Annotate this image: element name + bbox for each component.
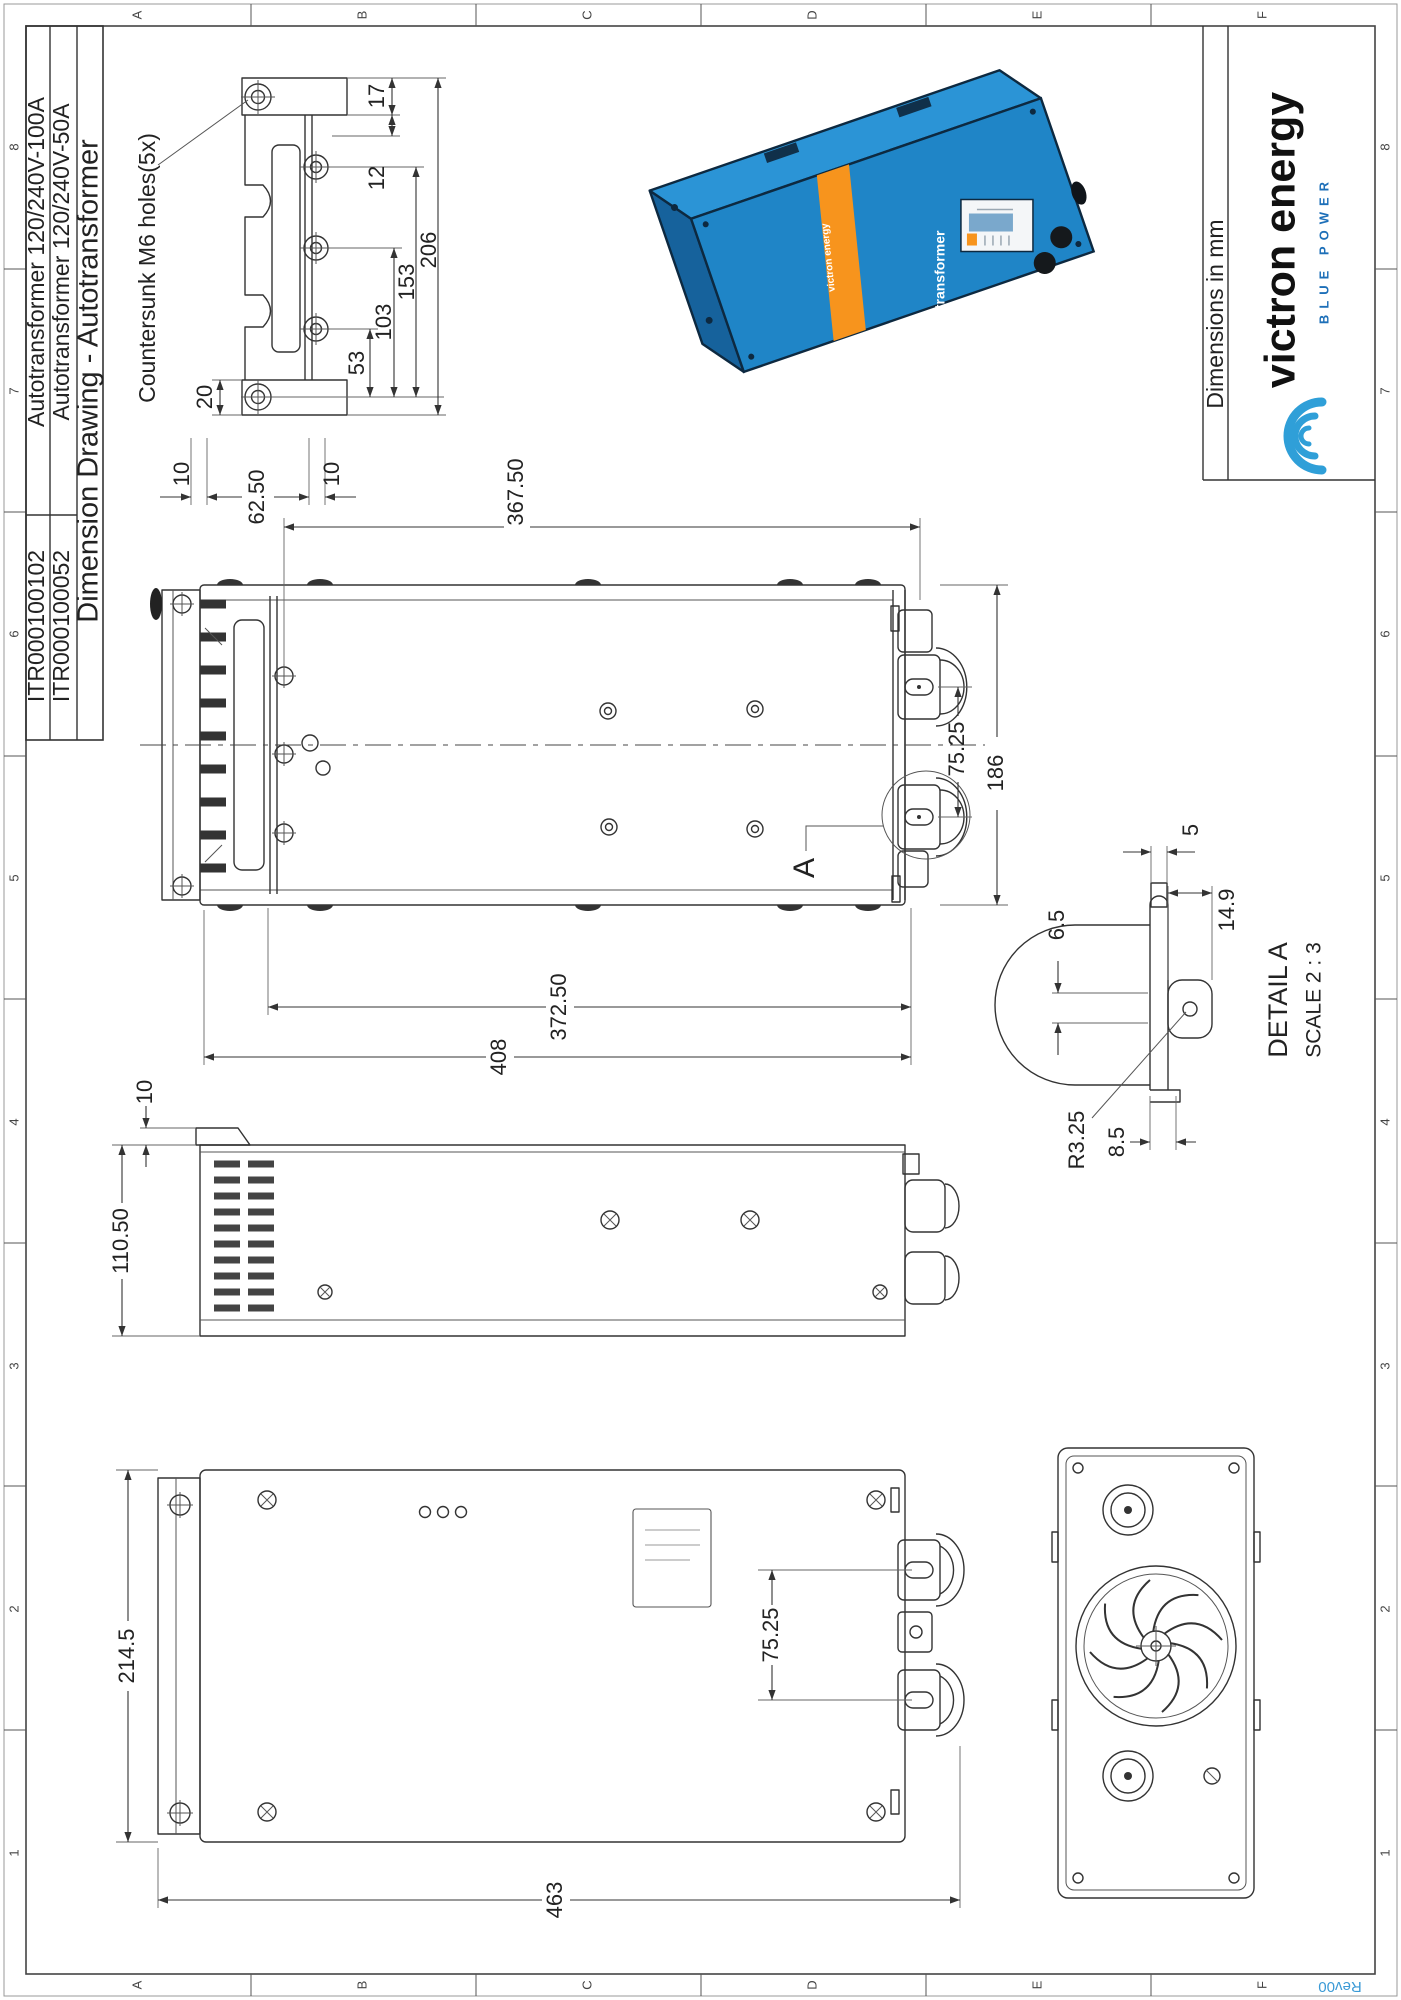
drawing-sheet-page: A B C D E F A B C D E F 8 7 6 5 4 3 2 1 … bbox=[0, 0, 1401, 2000]
title-block: Dimension Drawing - Autotransformer Auto… bbox=[23, 26, 105, 740]
row-description: Autotransformer 120/240V-50A bbox=[48, 103, 74, 421]
zone-number: 6 bbox=[1377, 630, 1392, 637]
dim-186: 186 bbox=[983, 755, 1008, 792]
zone-letter: A bbox=[129, 10, 144, 19]
zone-number: 7 bbox=[1377, 387, 1392, 394]
brand-block: Dimensions in mm victron energy BLUE POW… bbox=[1202, 26, 1375, 480]
dimension-drawing-svg: A B C D E F A B C D E F 8 7 6 5 4 3 2 1 … bbox=[0, 0, 1401, 2000]
brand-wordmark: victron energy bbox=[1256, 92, 1304, 388]
zone-letter: D bbox=[804, 1980, 819, 1989]
zone-number: 3 bbox=[6, 1362, 21, 1369]
bracket-view: Countersunk M6 holes(5x) 17 12 53 103 15… bbox=[134, 78, 446, 525]
dim-8-5: 8.5 bbox=[1104, 1127, 1129, 1158]
drawing-title: Dimension Drawing - Autotransformer bbox=[73, 139, 105, 623]
dim-110-50: 110.50 bbox=[108, 1208, 133, 1274]
dim-17: 17 bbox=[364, 84, 389, 108]
heatsink-fins bbox=[200, 604, 226, 868]
zone-letter: D bbox=[804, 10, 819, 19]
dim-10-left: 10 bbox=[169, 462, 194, 486]
detail-scale: SCALE 2 : 3 bbox=[1303, 942, 1326, 1058]
zone-letter: F bbox=[1254, 1981, 1269, 1989]
zone-number: 5 bbox=[1377, 874, 1392, 881]
product-sticker bbox=[961, 200, 1033, 252]
zone-number: 4 bbox=[1377, 1118, 1392, 1125]
zone-letter: E bbox=[1029, 10, 1044, 19]
dim-75-25-front: 75.25 bbox=[758, 1607, 783, 1662]
zone-number: 3 bbox=[1377, 1362, 1392, 1369]
row-part-no: ITR000100102 bbox=[23, 550, 49, 702]
cable-gland-front-view bbox=[898, 1534, 964, 1736]
zone-number: 2 bbox=[1377, 1605, 1392, 1612]
dim-62-50: 62.50 bbox=[244, 469, 269, 524]
dim-75-25: 75.25 bbox=[944, 721, 969, 776]
countersunk-holes bbox=[241, 80, 332, 414]
dim-6-5: 6.5 bbox=[1044, 910, 1069, 941]
dim-103: 103 bbox=[371, 304, 396, 341]
zone-number: 8 bbox=[6, 143, 21, 150]
fan bbox=[1076, 1566, 1236, 1726]
dim-10-right: 10 bbox=[319, 462, 344, 486]
zone-number: 5 bbox=[6, 874, 21, 881]
gland-end-top bbox=[1103, 1485, 1153, 1535]
main-top-view: A 367.50 186 75.25 372.50 408 bbox=[140, 458, 1008, 1075]
detail-marker: A bbox=[788, 858, 821, 878]
dim-20: 20 bbox=[192, 385, 217, 409]
product-label-text: Autotransformer bbox=[932, 230, 948, 341]
dim-12: 12 bbox=[364, 166, 389, 190]
zone-letter: B bbox=[354, 1981, 369, 1990]
dim-408: 408 bbox=[486, 1039, 511, 1076]
dim-53: 53 bbox=[344, 351, 369, 375]
units-note: Dimensions in mm bbox=[1202, 219, 1228, 408]
revision-label: Rev00 bbox=[1318, 1978, 1361, 1995]
zone-letter: E bbox=[1029, 1980, 1044, 1989]
vent-grille bbox=[214, 1164, 274, 1308]
dim-214-5: 214.5 bbox=[114, 1628, 139, 1683]
row-part-no: ITR000100052 bbox=[48, 550, 74, 702]
label-sticker bbox=[633, 1509, 711, 1607]
dim-10-side: 10 bbox=[132, 1080, 157, 1104]
zone-number: 4 bbox=[6, 1118, 21, 1125]
zone-number: 8 bbox=[1377, 143, 1392, 150]
zone-number: 1 bbox=[1377, 1849, 1392, 1856]
zone-letter: B bbox=[354, 11, 369, 20]
zone-number: 6 bbox=[6, 630, 21, 637]
zone-letter: F bbox=[1254, 11, 1269, 19]
zone-letter: C bbox=[579, 1980, 594, 1989]
zone-letter: C bbox=[579, 10, 594, 19]
victron-swirl-icon bbox=[1288, 402, 1322, 470]
cover-screws bbox=[258, 1491, 885, 1821]
product-render: victron energy Autotransformer bbox=[650, 57, 1117, 417]
zone-letter: A bbox=[129, 1980, 144, 1989]
front-view: 75.25 214.5 463 bbox=[114, 1470, 964, 1918]
zone-number: 2 bbox=[6, 1605, 21, 1612]
bracket-note: Countersunk M6 holes(5x) bbox=[134, 133, 160, 403]
brand-tagline: BLUE POWER bbox=[1316, 176, 1331, 324]
dim-r3-25: R3.25 bbox=[1064, 1111, 1089, 1170]
detail-title: DETAIL A bbox=[1263, 942, 1293, 1058]
dim-14-9: 14.9 bbox=[1214, 889, 1239, 932]
zone-number: 1 bbox=[6, 1849, 21, 1856]
zone-number: 7 bbox=[6, 387, 21, 394]
gland-end-bottom bbox=[1103, 1751, 1153, 1801]
end-view bbox=[1052, 1448, 1260, 1898]
dim-463: 463 bbox=[542, 1882, 567, 1919]
dim-5: 5 bbox=[1178, 824, 1203, 836]
detail-a-view: 6.5 5 14.9 R3.25 8.5 DETAIL A SCALE 2 : … bbox=[995, 824, 1326, 1169]
dim-367-50: 367.50 bbox=[503, 458, 528, 525]
dim-372-50: 372.50 bbox=[546, 973, 571, 1040]
side-view: 10 110.50 bbox=[108, 1080, 959, 1336]
detail-circle bbox=[882, 771, 970, 859]
row-description: Autotransformer 120/240V-100A bbox=[23, 96, 49, 427]
dim-206: 206 bbox=[416, 232, 441, 269]
